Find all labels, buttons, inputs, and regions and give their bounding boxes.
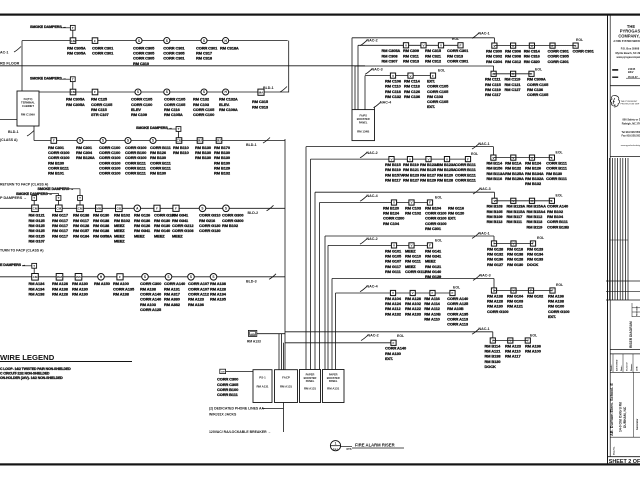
svg-text:S: S xyxy=(201,207,203,211)
svg-text:RD FLOOR: RD FLOOR xyxy=(0,62,20,66)
svg-text:CABINET: CABINET xyxy=(22,104,34,108)
svg-text:GB: GB xyxy=(116,207,121,211)
svg-text:Myrtle Beach, SC 29577: Myrtle Beach, SC 29577 xyxy=(615,51,640,55)
svg-text:EXT.: EXT. xyxy=(448,216,456,221)
svg-text:ANN: ANN xyxy=(250,333,255,336)
svg-text:S: S xyxy=(203,39,205,43)
svg-text:RM B130: RM B130 xyxy=(195,155,212,160)
svg-text:EXT.: EXT. xyxy=(427,104,435,109)
svg-text:NAC-1: NAC-1 xyxy=(479,327,490,331)
svg-text:RM C109A: RM C109A xyxy=(219,107,238,112)
svg-text:NAC-3: NAC-3 xyxy=(480,273,491,277)
svg-text:RM B127: RM B127 xyxy=(403,177,420,182)
svg-text:F: F xyxy=(175,207,177,211)
svg-text:CORR C105: CORR C105 xyxy=(527,92,549,97)
svg-text:Raleigh, NC 27609: Raleigh, NC 27609 xyxy=(622,122,640,125)
svg-text:RM C312: RM C312 xyxy=(425,59,442,64)
svg-text:(CLASS A): (CLASS A) xyxy=(0,138,18,142)
svg-text:AC-1: AC-1 xyxy=(0,51,8,55)
svg-text:www.pyrolocksafety.com: www.pyrolocksafety.com xyxy=(621,144,640,147)
svg-text:MA: MA xyxy=(217,139,223,143)
svg-text:T: T xyxy=(72,77,74,81)
svg-text:RM 134B: RM 134B xyxy=(357,130,369,134)
svg-text:BLD-2: BLD-2 xyxy=(248,211,259,215)
svg-text:SMOKE DAMPERS →: SMOKE DAMPERS → xyxy=(30,25,66,29)
svg-text:RM C304: RM C304 xyxy=(486,59,503,64)
svg-text:RM C318: RM C318 xyxy=(196,56,213,61)
svg-text:LKB: LKB xyxy=(637,366,639,371)
svg-text:(2) DEDICATED PHONE LINES AA-: (2) DEDICATED PHONE LINES AA- xyxy=(209,407,265,411)
svg-text:DOCK: DOCK xyxy=(485,364,496,369)
svg-text:F: F xyxy=(432,291,434,295)
svg-text:120VAC/ RA/LOCKABLE BREAKER →: 120VAC/ RA/LOCKABLE BREAKER → xyxy=(209,430,271,434)
svg-text:MEEZ: MEEZ xyxy=(134,233,145,238)
svg-text:T: T xyxy=(33,196,35,200)
svg-text:EOL: EOL xyxy=(438,69,446,73)
svg-text:RM G358A: RM G358A xyxy=(93,233,112,238)
svg-text:DURHAM, NC: DURHAM, NC xyxy=(623,406,627,428)
svg-text:S: S xyxy=(102,139,104,143)
svg-text:AS NOTED: AS NOTED xyxy=(616,359,619,371)
svg-text:RM C312: RM C312 xyxy=(505,59,522,64)
svg-text:F: F xyxy=(53,139,55,143)
svg-text:RM B119: RM B119 xyxy=(527,224,544,229)
svg-text:MEEZ: MEEZ xyxy=(114,238,125,243)
svg-text:EXT.: EXT. xyxy=(385,356,393,361)
svg-text:Generator: Generator xyxy=(636,419,639,430)
svg-text:BOOSTER: BOOSTER xyxy=(327,376,340,380)
svg-text:NAC-1: NAC-1 xyxy=(479,31,490,35)
svg-text:S: S xyxy=(190,275,192,279)
svg-text:FACP: FACP xyxy=(282,376,290,380)
svg-text:RM A131: RM A131 xyxy=(327,387,339,391)
svg-text:F: F xyxy=(94,90,96,94)
svg-text:CORR G100: CORR G100 xyxy=(99,171,121,176)
svg-text:C CIRCUIT-12/2 NON-SHIELDED: C CIRCUIT-12/2 NON-SHIELDED xyxy=(0,371,50,375)
svg-text:NAC-4: NAC-4 xyxy=(367,194,378,198)
svg-text:NAC-3: NAC-3 xyxy=(372,67,383,71)
svg-text:BKV: BKV xyxy=(628,70,634,74)
svg-text:F: F xyxy=(393,341,395,345)
svg-text:CORR C100: CORR C100 xyxy=(193,112,215,117)
svg-text:RM A100: RM A100 xyxy=(525,349,542,354)
svg-text:BLD-1: BLD-1 xyxy=(8,130,19,134)
svg-text:NAC-3: NAC-3 xyxy=(480,187,491,191)
svg-text:FA/PS: FA/PS xyxy=(359,114,367,118)
svg-text:RM C102: RM C102 xyxy=(405,211,422,216)
svg-text:RM C318A: RM C318A xyxy=(220,45,239,50)
svg-text:T: T xyxy=(58,196,60,200)
svg-text:RM C109A: RM C109A xyxy=(21,113,36,117)
svg-text:RM A135: RM A135 xyxy=(210,297,227,302)
svg-text:RM A110: RM A110 xyxy=(424,317,440,322)
svg-text:CM: CM xyxy=(177,139,182,143)
svg-text:RM G107: RM G107 xyxy=(29,238,46,243)
svg-text:MA: MA xyxy=(259,90,265,94)
svg-text:RM B110: RM B110 xyxy=(173,150,190,155)
svg-text:Tel 919.528.5530: Tel 919.528.5530 xyxy=(622,131,640,134)
svg-text:CORR C301: CORR C301 xyxy=(163,56,185,61)
svg-text:BOOSTER: BOOSTER xyxy=(357,117,370,121)
svg-text:RM C105A: RM C105A xyxy=(164,112,183,117)
svg-text:FIRE ALARM RISER: FIRE ALARM RISER xyxy=(355,442,395,447)
svg-text:RM C305A: RM C305A xyxy=(67,50,86,55)
svg-text:CORR G112: CORR G112 xyxy=(405,269,427,274)
svg-text:S: S xyxy=(127,139,129,143)
svg-text:NAC-4: NAC-4 xyxy=(367,285,378,289)
svg-text:NTS: NTS xyxy=(347,448,352,451)
svg-text:EOL: EOL xyxy=(535,67,543,71)
svg-text:EOL: EOL xyxy=(397,334,405,338)
svg-text:CORR B111: CORR B111 xyxy=(217,392,239,397)
svg-text:CORR B111: CORR B111 xyxy=(125,171,147,176)
svg-text:PANEL: PANEL xyxy=(306,379,315,383)
svg-text:ON-HOLDER (24V)- 14/2 NON-SHIE: ON-HOLDER (24V)- 14/2 NON-SHIELDED xyxy=(0,376,63,380)
svg-text:NAC-2: NAC-2 xyxy=(367,39,378,43)
svg-text:RM A136: RM A136 xyxy=(188,302,205,307)
svg-text:RM A131: RM A131 xyxy=(256,385,268,389)
svg-text:RM C117: RM C117 xyxy=(485,92,502,97)
svg-text:NAC-4: NAC-4 xyxy=(380,101,391,105)
svg-text:AB. Durham Elem. School- E: AB. Durham Elem. School- E xyxy=(609,383,614,436)
svg-text:CM: CM xyxy=(71,90,76,94)
svg-text:REV DATE: REV DATE xyxy=(636,305,639,316)
svg-text:F: F xyxy=(94,39,96,43)
svg-text:S: S xyxy=(225,207,227,211)
svg-text:BM: BM xyxy=(57,275,62,279)
svg-text:CM: CM xyxy=(221,372,225,374)
svg-text:RM B132: RM B132 xyxy=(214,171,231,176)
svg-text:S: S xyxy=(167,275,169,279)
svg-text:T: T xyxy=(178,127,180,131)
svg-text:A FIRE SYSTEM SERVICE: A FIRE SYSTEM SERVICE xyxy=(613,40,640,43)
svg-text:CM: CM xyxy=(33,207,38,211)
svg-text:RM B130: RM B130 xyxy=(150,171,167,176)
svg-text:S: S xyxy=(166,90,168,94)
svg-text:RM B128: RM B128 xyxy=(437,177,454,182)
svg-text:RM C313: RM C313 xyxy=(403,59,420,64)
svg-text:MM: MM xyxy=(96,207,102,211)
svg-text:RM A131: RM A131 xyxy=(280,385,292,389)
svg-text:NAC-2: NAC-2 xyxy=(368,334,379,338)
svg-text:EOL: EOL xyxy=(471,152,479,156)
svg-text:RM B101: RM B101 xyxy=(48,171,65,176)
svg-text:RM C127: RM C127 xyxy=(505,87,522,92)
svg-text:RM C104: RM C104 xyxy=(383,221,400,226)
svg-text:RM A382: RM A382 xyxy=(164,302,181,307)
svg-text:RM C310: RM C310 xyxy=(133,61,150,66)
svg-text:RM G130: RM G130 xyxy=(507,262,524,267)
svg-text:RM G127: RM G127 xyxy=(487,262,504,267)
svg-text:EOL: EOL xyxy=(556,283,564,287)
svg-text:S: S xyxy=(152,139,154,143)
svg-text:CM: CM xyxy=(33,275,38,279)
svg-text:T: T xyxy=(72,26,74,30)
svg-text:EXT.: EXT. xyxy=(548,314,556,319)
svg-text:Fax 919.528.5531: Fax 919.528.5531 xyxy=(622,135,640,138)
svg-text:CORR C301: CORR C301 xyxy=(548,59,570,64)
svg-text:S: S xyxy=(137,90,139,94)
svg-text:RM B102: RM B102 xyxy=(222,223,239,228)
svg-text:F: F xyxy=(452,291,454,295)
svg-text:S: S xyxy=(203,90,205,94)
svg-text:NAC-1: NAC-1 xyxy=(479,142,490,146)
svg-text:EOL: EOL xyxy=(556,151,564,155)
svg-text:PAPER: PAPER xyxy=(329,372,338,376)
svg-text:THE PYROMONT: THE PYROMONT xyxy=(621,101,638,103)
svg-text:CORR G100: CORR G100 xyxy=(487,309,509,314)
svg-text:F: F xyxy=(467,157,469,161)
svg-text:CORR B13B: CORR B13B xyxy=(547,224,569,229)
svg-text:CORR C301: CORR C301 xyxy=(92,50,114,55)
svg-text:STR C107: STR C107 xyxy=(91,112,109,117)
svg-text:SMOKE DAMPERS →: SMOKE DAMPERS → xyxy=(38,187,74,191)
svg-text:CM: CM xyxy=(78,207,83,211)
svg-text:RM C109: RM C109 xyxy=(131,112,148,117)
svg-text:NAC-2: NAC-2 xyxy=(367,151,378,155)
svg-text:NAC-2: NAC-2 xyxy=(367,237,378,241)
svg-text:BLD-3: BLD-3 xyxy=(246,280,257,284)
svg-text:F: F xyxy=(429,201,431,205)
svg-text:RM C313: RM C313 xyxy=(252,104,269,109)
svg-text:CORR C301: CORR C301 xyxy=(447,59,469,64)
svg-text:DOCK: DOCK xyxy=(527,262,538,267)
svg-text:RM G117: RM G117 xyxy=(52,233,69,238)
svg-text:MEEZ: MEEZ xyxy=(154,233,165,238)
svg-text:BOOSTER: BOOSTER xyxy=(304,376,317,380)
svg-text:CORR C301: CORR C301 xyxy=(573,49,595,54)
svg-text:CORR A125: CORR A125 xyxy=(140,307,162,312)
svg-text:S: S xyxy=(212,275,214,279)
svg-text:RM C307: RM C307 xyxy=(382,59,399,64)
svg-text:FA5: FA5 xyxy=(333,447,339,451)
svg-text:05-02-07: 05-02-07 xyxy=(627,361,629,371)
svg-text:RM G111: RM G111 xyxy=(385,269,402,274)
svg-text:EOL: EOL xyxy=(453,285,461,289)
svg-text:EOL: EOL xyxy=(537,236,545,240)
svg-text:SHEET 2 OF 2: SHEET 2 OF 2 xyxy=(609,459,640,465)
svg-text:CM: CM xyxy=(71,39,76,43)
svg-text:RM B129A: RM B129A xyxy=(505,176,524,181)
svg-text:Date:: Date: xyxy=(620,365,623,371)
svg-text:PS-1: PS-1 xyxy=(259,376,266,380)
svg-text:RM A131: RM A131 xyxy=(304,387,316,391)
svg-text:EOL: EOL xyxy=(556,194,564,198)
svg-text:TURN TO FACP (CLASS A): TURN TO FACP (CLASS A) xyxy=(0,249,43,253)
svg-text:RM A138: RM A138 xyxy=(29,292,46,297)
svg-text:RM C132: RM C132 xyxy=(385,94,402,99)
svg-text:RM A150: RM A150 xyxy=(94,281,111,286)
svg-text:RM B132: RM B132 xyxy=(525,181,542,186)
svg-text:SMOKE DAMPERS →: SMOKE DAMPERS → xyxy=(136,126,172,130)
svg-text:EOL: EOL xyxy=(530,334,538,338)
svg-text:S: S xyxy=(166,39,168,43)
svg-text:WIRE LEGEND: WIRE LEGEND xyxy=(0,353,55,362)
svg-text:Scale:: Scale: xyxy=(611,364,613,371)
svg-text:RM C136: RM C136 xyxy=(404,94,421,99)
svg-text:1: 1 xyxy=(335,442,337,446)
svg-text:Drawn:: Drawn: xyxy=(631,363,633,371)
svg-text:RM A121: RM A121 xyxy=(507,304,524,309)
svg-text:RM B126A: RM B126A xyxy=(76,155,95,160)
svg-text:RM A132: RM A132 xyxy=(385,311,402,316)
svg-text:RM G102: RM G102 xyxy=(527,293,544,298)
svg-text:RM C301: RM C301 xyxy=(425,226,442,231)
svg-text:Dwg No.: Dwg No. xyxy=(614,446,616,455)
svg-text:RM C320: RM C320 xyxy=(524,59,541,64)
svg-text:www.pyrogascompany: www.pyrogascompany xyxy=(617,57,640,59)
svg-text:W/RJ31X JACKS: W/RJ31X JACKS xyxy=(209,413,237,417)
svg-text:MEEZ: MEEZ xyxy=(172,233,183,238)
svg-text:F: F xyxy=(429,244,431,248)
svg-text:CORR G130: CORR G130 xyxy=(199,228,221,233)
svg-text:RM A128: RM A128 xyxy=(52,292,69,297)
svg-text:RETURN TO FACP (CLASS A): RETURN TO FACP (CLASS A) xyxy=(0,182,48,186)
svg-text:EOL: EOL xyxy=(435,238,443,242)
svg-text:RM G184: RM G184 xyxy=(73,233,90,238)
svg-text:E DAMPERS →: E DAMPERS → xyxy=(0,263,26,267)
svg-text:C LOOP- 14/2 TWISTED PAIR NON-: C LOOP- 14/2 TWISTED PAIR NON-SHIELDED xyxy=(0,367,71,371)
svg-text:RM B111: RM B111 xyxy=(507,219,523,224)
svg-text:PANEL: PANEL xyxy=(359,120,368,124)
svg-text:RM B129: RM B129 xyxy=(420,177,437,182)
svg-text:05-02-07: 05-02-07 xyxy=(628,76,638,79)
svg-text:RM A133: RM A133 xyxy=(247,339,261,343)
svg-text:P DAMPERS →: P DAMPERS → xyxy=(0,196,27,200)
svg-text:CORR B111: CORR B111 xyxy=(546,176,568,181)
svg-text:T: T xyxy=(79,196,81,200)
svg-text:PAPER: PAPER xyxy=(306,372,315,376)
svg-text:F: F xyxy=(460,44,462,48)
svg-text:PROTECTION GRP: PROTECTION GRP xyxy=(621,104,640,106)
svg-text:F: F xyxy=(119,275,121,279)
svg-text:F: F xyxy=(432,74,434,78)
svg-text:RM A130: RM A130 xyxy=(72,292,89,297)
svg-text:800 Safety-or Dr: 800 Safety-or Dr xyxy=(623,119,640,122)
svg-text:COMPANY,: COMPANY, xyxy=(618,33,639,38)
svg-text:S: S xyxy=(144,275,146,279)
svg-text:EOL: EOL xyxy=(435,195,443,199)
svg-text:SMOKE DAMPERS →: SMOKE DAMPERS → xyxy=(30,76,66,80)
svg-text:TERMINAL: TERMINAL xyxy=(21,101,35,105)
svg-text:CM: CM xyxy=(56,207,61,211)
svg-text:CORR B111: CORR B111 xyxy=(455,177,477,182)
svg-text:BLD-1: BLD-1 xyxy=(246,143,257,147)
svg-text:RM B117: RM B117 xyxy=(385,177,402,182)
svg-text:RM C305A: RM C305A xyxy=(66,102,85,107)
svg-text:F: F xyxy=(156,207,158,211)
svg-text:NAC-1: NAC-1 xyxy=(479,231,490,235)
svg-text:T: T xyxy=(33,264,35,268)
svg-text:P.O. Box 55608: P.O. Box 55608 xyxy=(621,47,640,51)
svg-text:EOL: EOL xyxy=(576,38,584,42)
svg-text:FA(TC): FA(TC) xyxy=(24,97,33,101)
svg-text:RM A133: RM A133 xyxy=(405,311,422,316)
svg-text:RISER DIAGRAM: RISER DIAGRAM xyxy=(629,321,633,348)
svg-text:PANEL: PANEL xyxy=(329,379,338,383)
svg-text:S: S xyxy=(138,39,140,43)
svg-text:RM B113: RM B113 xyxy=(487,219,504,224)
svg-text:RM A117: RM A117 xyxy=(505,354,521,359)
svg-text:14-0 Old Oxford Rd: 14-0 Old Oxford Rd xyxy=(619,402,623,432)
svg-text:CORR A113: CORR A113 xyxy=(447,322,469,327)
svg-text:MA: MA xyxy=(198,139,204,143)
svg-text:RM B116: RM B116 xyxy=(486,176,503,181)
svg-text:RM A138: RM A138 xyxy=(113,292,130,297)
svg-text:BB: BB xyxy=(76,275,81,279)
